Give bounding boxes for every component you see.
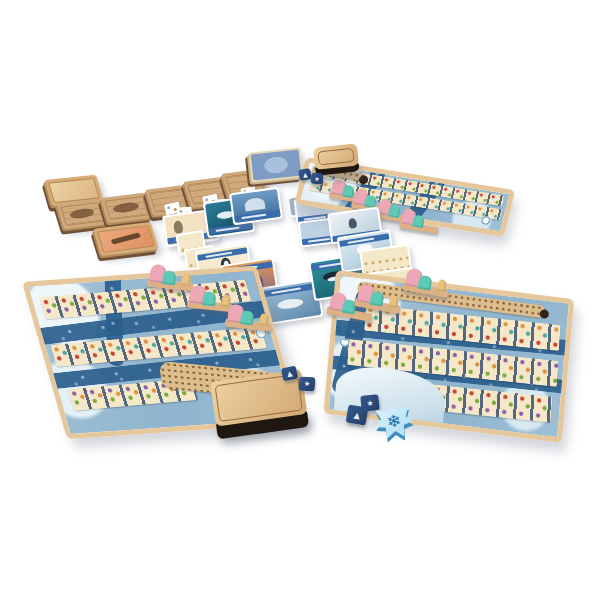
snowflake-token: ❄	[373, 402, 415, 441]
die: ▲	[298, 168, 312, 181]
board-game-product-photo: ▲ ★	[0, 0, 600, 600]
card-deck	[249, 147, 304, 182]
die: ★	[299, 376, 316, 391]
die: ★	[310, 172, 323, 184]
feather-tile	[93, 222, 159, 256]
teal-animal-standee	[162, 270, 176, 285]
teal-animal-standee	[369, 291, 384, 307]
sled-standee-group	[399, 205, 441, 234]
paw-icon	[331, 151, 343, 161]
teal-animal-standee	[202, 291, 216, 306]
mountain-card-upper	[229, 187, 283, 226]
die-star-icon: ★	[314, 175, 320, 183]
teal-animal-standee	[417, 275, 432, 291]
ship-badge-icon	[339, 338, 350, 347]
paw-icon	[65, 183, 82, 196]
die-arrow-icon: ▲	[286, 369, 293, 378]
animal-tile-b	[100, 193, 152, 224]
die-star-icon: ★	[304, 380, 311, 388]
die-arrow-icon: ▲	[353, 410, 361, 420]
teal-animal-standee	[240, 310, 254, 325]
sled-standee-group	[225, 300, 274, 332]
teal-animal-standee	[412, 215, 425, 228]
cream-figure-standee	[259, 313, 269, 326]
paw-box-large	[210, 369, 309, 439]
paw-box-lid	[313, 143, 360, 175]
teal-animal-standee	[388, 205, 401, 218]
deck-back-art	[251, 150, 301, 181]
paw-icon	[241, 382, 276, 412]
die-arrow-icon: ▲	[302, 171, 308, 179]
die: ▲	[346, 404, 369, 425]
snowflake-icon: ❄	[386, 410, 403, 432]
compass-badge-icon	[480, 215, 491, 225]
animal-tile-a	[56, 199, 108, 230]
